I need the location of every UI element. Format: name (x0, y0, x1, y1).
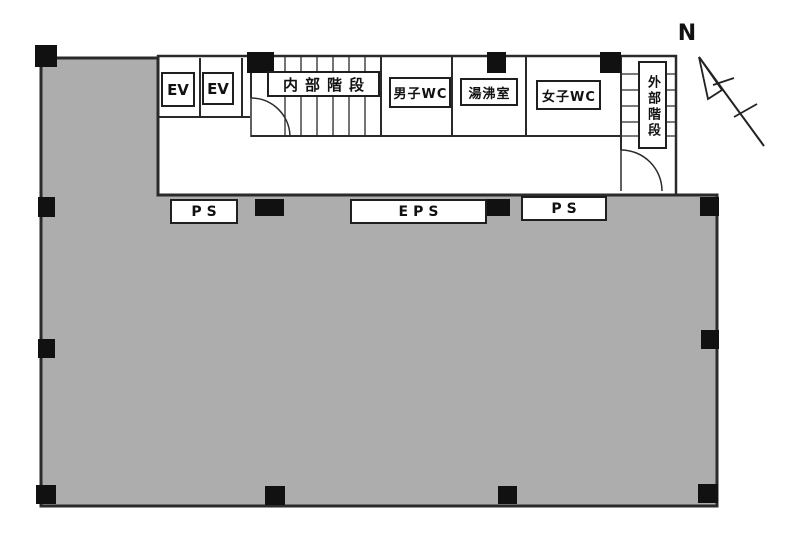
mens-wc-label: 男子WC (389, 77, 451, 108)
column-marker (487, 52, 506, 73)
column-marker (701, 330, 719, 349)
column-marker (38, 339, 55, 358)
floor-plan: N EV EV 内部階段 男子WC 湯沸室 女子WC 外部階段 PS EPS P… (0, 0, 787, 544)
electrical-pipe-shaft-label: EPS (350, 199, 487, 224)
column-marker (265, 486, 285, 505)
pipe-shaft-right-label: PS (521, 196, 607, 221)
column-marker (600, 52, 621, 73)
column-marker (700, 197, 719, 216)
external-stairs-label: 外部階段 (638, 61, 667, 149)
column-marker (247, 52, 274, 73)
external-stair-door-arc (621, 150, 662, 191)
column-marker (36, 485, 56, 504)
womens-wc-label: 女子WC (536, 80, 601, 110)
pipe-shaft-left-label: PS (170, 199, 238, 224)
column-marker (487, 199, 510, 216)
column-marker (698, 484, 718, 503)
internal-stair-door-arc (251, 98, 290, 137)
kitchenette-label: 湯沸室 (460, 78, 518, 106)
column-marker (255, 199, 284, 216)
column-marker (35, 45, 57, 67)
north-compass-icon (699, 57, 764, 146)
open-floor-area (41, 58, 717, 506)
elevator-2-label: EV (202, 72, 234, 105)
column-marker (498, 486, 517, 504)
elevator-1-label: EV (161, 72, 195, 107)
north-label: N (672, 20, 702, 46)
column-marker (38, 197, 55, 217)
internal-stairs-label: 内部階段 (267, 71, 380, 97)
